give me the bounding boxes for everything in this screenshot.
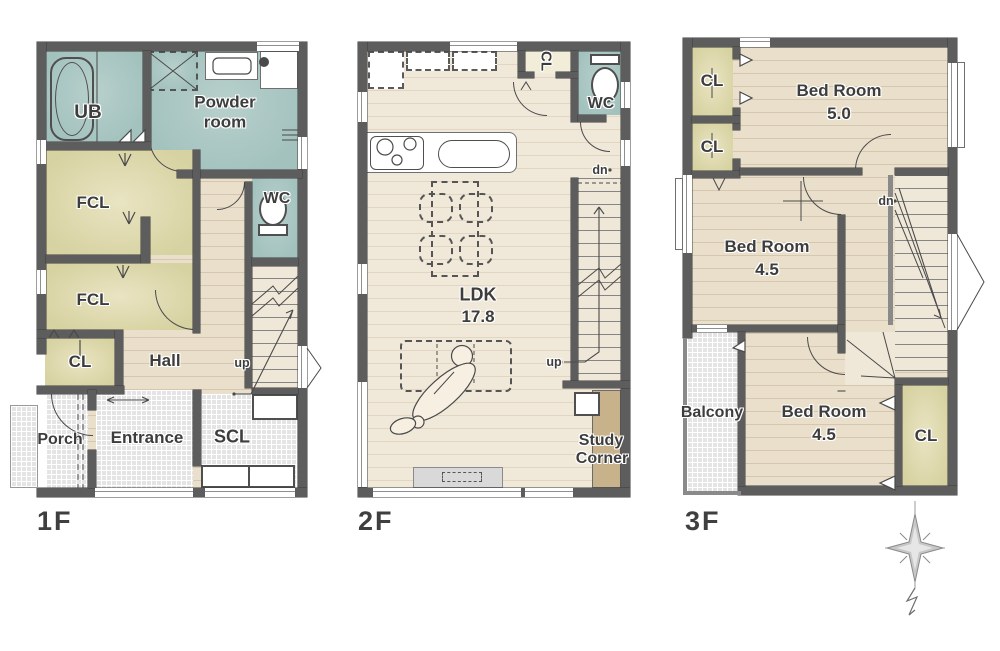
label-ldk: LDK bbox=[460, 285, 497, 306]
label-powder-room: Powder room bbox=[183, 92, 267, 131]
label-hall: Hall bbox=[149, 351, 180, 371]
label-scl: SCL bbox=[214, 427, 250, 448]
label-bed1: Bed Room bbox=[797, 81, 882, 101]
label-study-line1: Study bbox=[579, 432, 623, 450]
floor-title-1f: 1F bbox=[37, 506, 73, 537]
label-up-1f: up bbox=[234, 356, 249, 370]
floor-title-2f: 2F bbox=[358, 506, 394, 537]
label-cl-2f: CL bbox=[537, 51, 554, 71]
label-ub: UB bbox=[74, 102, 101, 124]
label-bed2-size: 4.5 bbox=[755, 260, 779, 280]
floor-plan-canvas: UB Powder room WC FCL FCL CL Hall up Por… bbox=[0, 0, 1000, 651]
floor-title-3f: 3F bbox=[685, 506, 721, 537]
label-ldk-size: 17.8 bbox=[461, 307, 494, 327]
label-study-line2: Corner bbox=[576, 450, 628, 468]
label-cl-1f: CL bbox=[69, 352, 92, 372]
label-porch: Porch bbox=[37, 431, 82, 449]
label-cl-mid: CL bbox=[701, 137, 724, 157]
floor-plan-3f: CL CL Bed Room 5.0 Bed Room 4.5 Bed Room… bbox=[683, 38, 957, 495]
label-fcl-upper: FCL bbox=[76, 193, 109, 213]
label-dn-2f: dn bbox=[592, 163, 607, 177]
north-compass-icon bbox=[878, 496, 953, 636]
label-entrance: Entrance bbox=[111, 428, 184, 448]
label-bed2: Bed Room bbox=[725, 237, 810, 257]
label-wc-2f: WC bbox=[588, 95, 615, 113]
label-cl-bottom: CL bbox=[915, 426, 938, 446]
label-up-2f: up bbox=[546, 355, 561, 369]
label-bed1-size: 5.0 bbox=[827, 104, 851, 124]
porch-slab bbox=[10, 405, 38, 488]
label-wc-1f: WC bbox=[264, 190, 291, 208]
floor-plan-2f: CL WC LDK 17.8 dn up Study Corner bbox=[358, 42, 630, 497]
label-fcl-lower: FCL bbox=[76, 290, 109, 310]
label-dn-3f: dn bbox=[878, 194, 893, 208]
floor-plan-1f: UB Powder room WC FCL FCL CL Hall up Por… bbox=[37, 42, 307, 497]
label-bed3-size: 4.5 bbox=[812, 425, 836, 445]
label-cl-top: CL bbox=[701, 71, 724, 91]
window-frame bbox=[675, 178, 683, 250]
label-balcony: Balcony bbox=[681, 404, 743, 422]
label-bed3: Bed Room bbox=[782, 402, 867, 422]
